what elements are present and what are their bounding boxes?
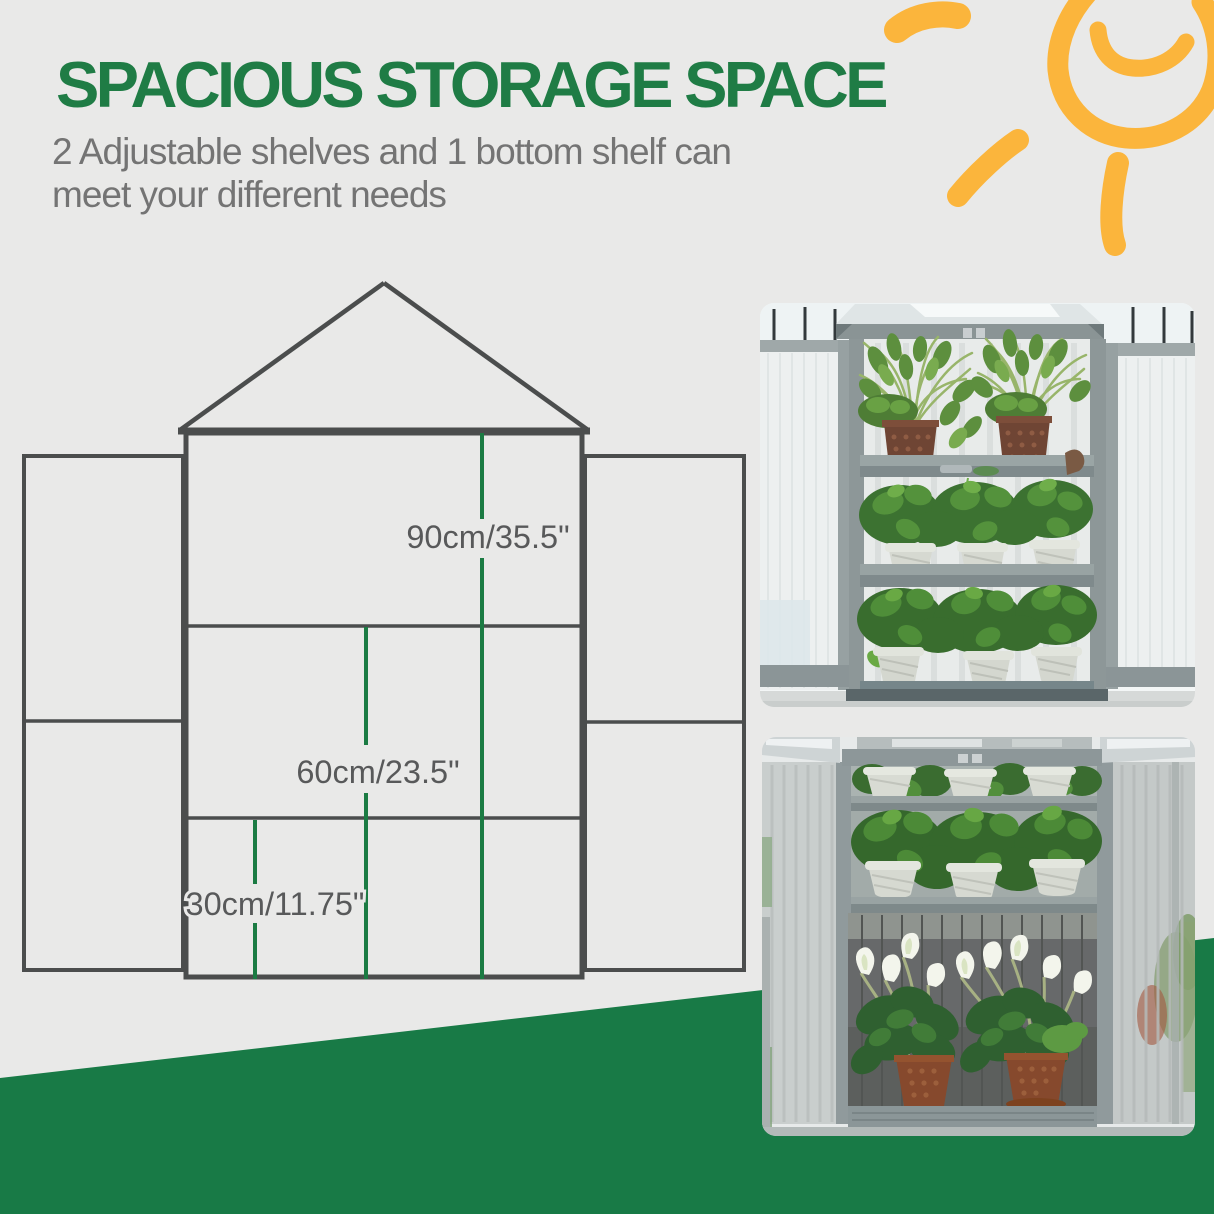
svg-text:90cm/35.5": 90cm/35.5" (406, 519, 569, 555)
svg-text:60cm/23.5": 60cm/23.5" (296, 754, 459, 790)
svg-text:30cm/11.75": 30cm/11.75" (186, 886, 365, 922)
